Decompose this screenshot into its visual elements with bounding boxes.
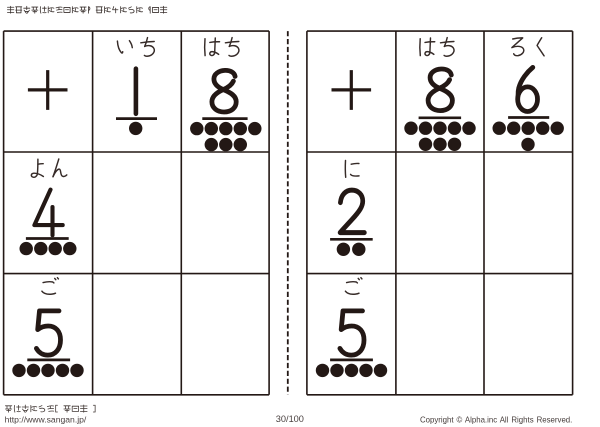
svg-text:http://www.sangan.jp/: http://www.sangan.jp/ xyxy=(5,414,87,424)
svg-text:Copyright © Alpha.inc All Righ: Copyright © Alpha.inc All Rights Reserve… xyxy=(420,416,572,425)
svg-text:30/100: 30/100 xyxy=(276,414,304,424)
